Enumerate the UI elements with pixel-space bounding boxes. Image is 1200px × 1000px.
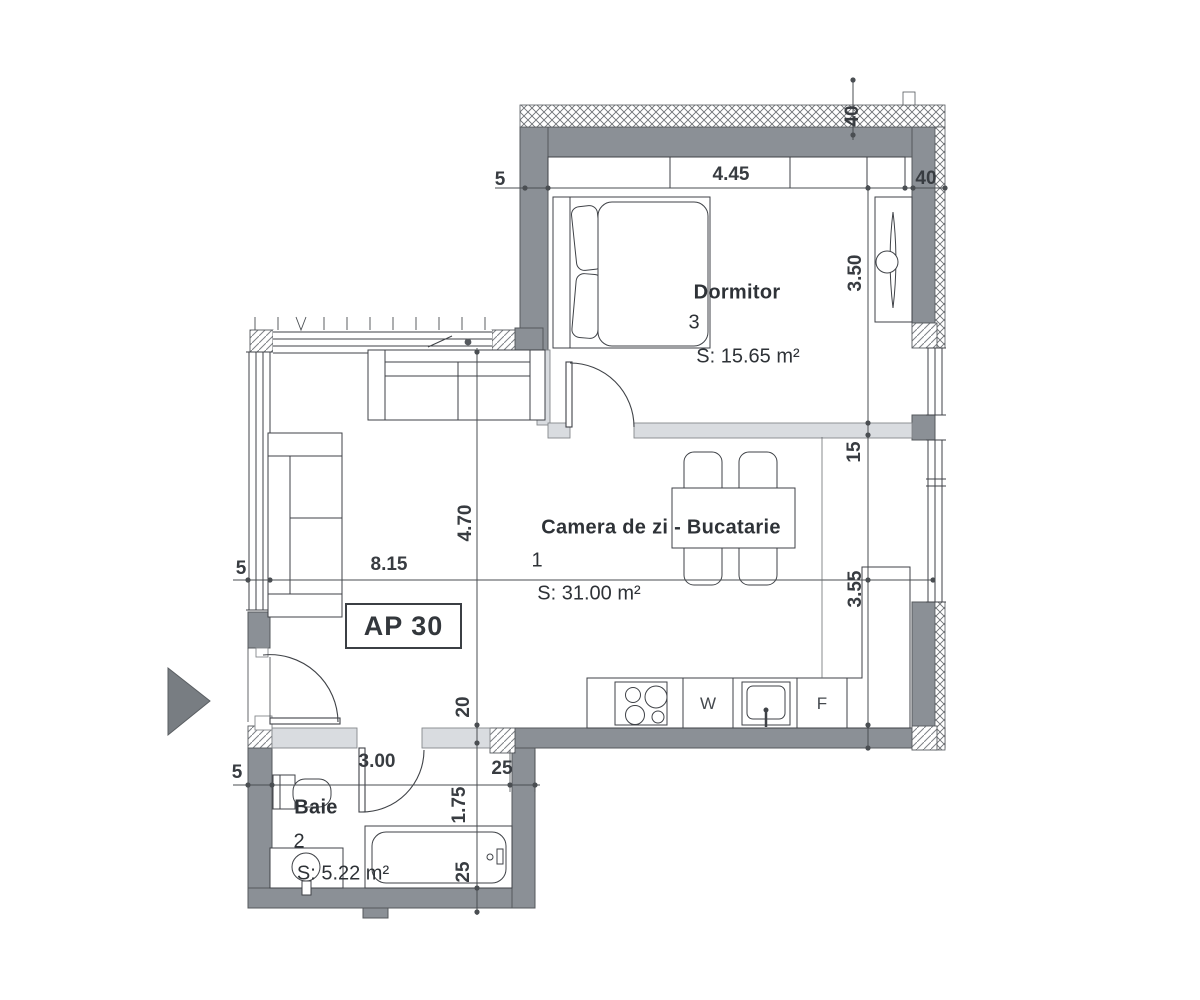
entry-door — [248, 648, 340, 724]
window-right-lower — [926, 440, 946, 602]
dim-bath-wall-right: 25 — [491, 758, 512, 780]
living-area-label: S: 31.00 m² — [537, 583, 640, 606]
window-right-upper — [926, 348, 946, 415]
bath-area-label: S: 5.22 m² — [297, 863, 389, 886]
apartment-label: AP 30 — [345, 603, 462, 649]
sofa-left — [268, 433, 342, 617]
bedroom-area-label: S: 15.65 m² — [696, 346, 799, 369]
dim-bath-wall: 20 — [453, 696, 475, 717]
bedroom-door — [566, 362, 634, 427]
dim-living-height: 4.70 — [455, 505, 477, 542]
bed — [553, 197, 710, 348]
bedroom-name-label: Dormitor — [694, 282, 781, 305]
stove — [615, 682, 667, 725]
dim-wall-right: 40 — [915, 168, 936, 190]
bath-number-label: 2 — [293, 831, 304, 854]
dim-partition: 15 — [844, 441, 866, 462]
fridge-label: F — [817, 694, 827, 714]
dim-sill-left: 5 — [236, 558, 247, 580]
bath-name-label: Baie — [294, 797, 337, 820]
kitchen-sink — [742, 682, 790, 727]
living-name-label: Camera de zi - Bucatarie — [541, 517, 781, 540]
dim-bedroom-depth: 3.50 — [845, 255, 867, 292]
dim-bath-sill: 5 — [232, 762, 243, 784]
plan-drawing — [0, 0, 1200, 1000]
bedroom-number-label: 3 — [688, 312, 699, 335]
dim-wall-top: 40 — [842, 105, 864, 126]
floor-plan: Dormitor 3 S: 15.65 m² Camera de zi - Bu… — [0, 0, 1200, 1000]
living-number-label: 1 — [531, 550, 542, 573]
dim-sill-top: 5 — [495, 169, 506, 191]
washer-label: W — [700, 694, 716, 714]
dim-living-width: 8.15 — [371, 554, 408, 576]
dim-bath-width: 3.00 — [359, 751, 396, 773]
dresser-mirror — [875, 197, 912, 322]
dim-bath-depth: 1.75 — [449, 787, 471, 824]
dim-living-depth: 3.55 — [845, 571, 867, 608]
sofa-top — [368, 350, 545, 420]
dim-bath-wall-bottom: 25 — [453, 861, 475, 882]
railing-ticks — [255, 317, 485, 330]
entrance-arrow-icon — [168, 668, 210, 735]
dim-bedroom-width: 4.45 — [713, 164, 750, 186]
